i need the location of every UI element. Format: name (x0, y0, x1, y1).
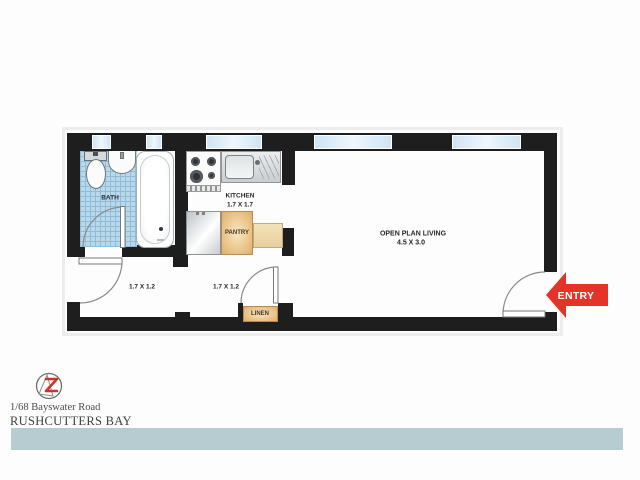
bathtub-inner (140, 155, 170, 244)
window-bath-2 (146, 135, 162, 149)
kitchen-label: KITCHEN (226, 193, 255, 200)
entry-label: ENTRY (558, 290, 595, 302)
wall-bottom (67, 317, 557, 331)
window-living-2 (452, 135, 521, 149)
bench-cupboard (253, 223, 283, 248)
stove-burner-2 (207, 157, 216, 166)
wall-right-upper (544, 151, 557, 272)
hall-right-dims: 1.7 X 1.2 (213, 284, 239, 291)
bathtub-overflow (157, 239, 164, 241)
wall-kitchen-lower-right (282, 228, 294, 256)
logo-sail-shape (39, 375, 53, 396)
kitchen-dims: 1.7 X 1.7 (227, 202, 253, 209)
bath-label: BATH (101, 195, 119, 202)
toilet-button (93, 152, 98, 156)
stove-burner-1 (191, 157, 200, 166)
wall-hall-stub-upper (173, 257, 188, 267)
fridge-hinge-2 (202, 212, 205, 215)
fridge (186, 211, 221, 255)
pantry-label: PANTRY (225, 230, 249, 236)
toilet (86, 159, 106, 189)
window-living-1 (314, 135, 392, 149)
logo-z-mark (46, 379, 57, 391)
basin-tap (120, 152, 124, 159)
window-bath-1 (92, 135, 111, 149)
wall-right-lower (544, 312, 557, 331)
living-dims: 4.5 X 3.0 (397, 240, 425, 247)
wall-hall-stub-lower (175, 312, 190, 317)
wall-linen-right (278, 303, 293, 317)
stove-knobs (186, 185, 221, 192)
suburb-line: RUSHCUTTERS BAY (10, 414, 132, 429)
stove-burner-3 (190, 170, 203, 183)
floorplan-page: ENTRY BATH KITCHEN 1.7 X 1.7 1.7 X 1.2 1… (0, 0, 640, 480)
bathtub-drain (159, 227, 163, 231)
agency-logo (37, 374, 62, 399)
stove-burner-4 (208, 172, 215, 179)
kitchen-sink-basin (225, 155, 254, 179)
wall-left-upper (67, 133, 80, 257)
fridge-hinge-1 (196, 212, 199, 215)
footer-band (11, 428, 623, 450)
living-label: OPEN PLAN LIVING (380, 231, 446, 238)
kitchen-sink-drainer (259, 155, 279, 179)
linen-label: LINEN (251, 311, 269, 317)
hall-left-dims: 1.7 X 1.2 (129, 284, 155, 291)
window-kitchen (206, 135, 262, 149)
wall-kitchen-right (282, 151, 295, 185)
address-line: 1/68 Bayswater Road (10, 402, 100, 413)
